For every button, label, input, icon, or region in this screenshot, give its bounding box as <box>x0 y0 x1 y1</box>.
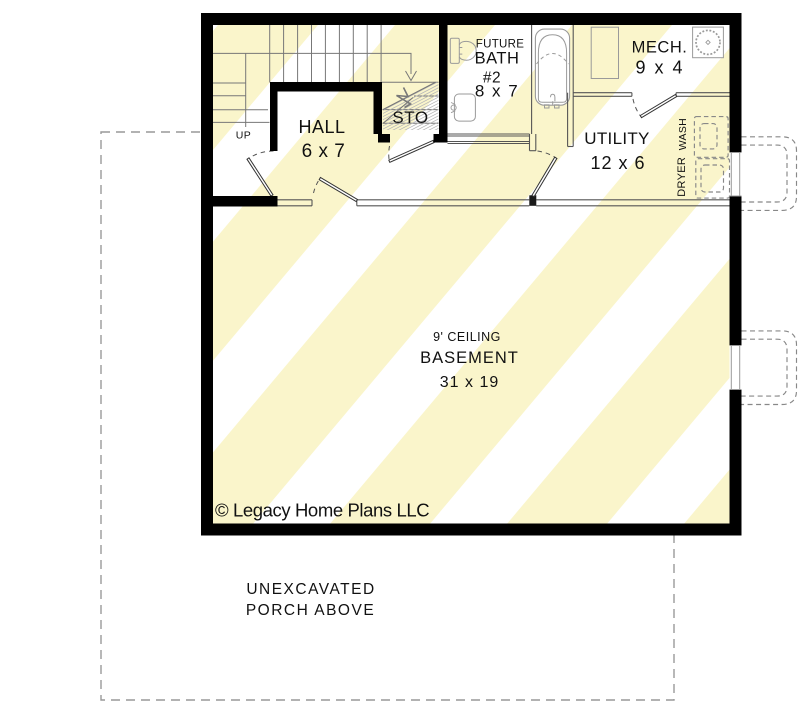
svg-text:UP: UP <box>236 130 252 142</box>
svg-text:PORCH ABOVE: PORCH ABOVE <box>246 602 375 619</box>
svg-text:UNEXCAVATED: UNEXCAVATED <box>246 581 375 598</box>
svg-text:31 x 19: 31 x 19 <box>440 374 499 391</box>
svg-text:STO: STO <box>392 108 428 127</box>
svg-text:WASH: WASH <box>677 118 689 150</box>
svg-text:9 x 4: 9 x 4 <box>635 58 684 78</box>
svg-text:MECH.: MECH. <box>632 39 688 57</box>
svg-text:8 x 7: 8 x 7 <box>475 82 519 101</box>
svg-text:12 x 6: 12 x 6 <box>590 153 645 173</box>
svg-text:HALL: HALL <box>298 117 345 137</box>
svg-text:© Legacy Home Plans LLC: © Legacy Home Plans LLC <box>215 500 429 521</box>
svg-text:UTILITY: UTILITY <box>584 129 649 148</box>
svg-text:BASEMENT: BASEMENT <box>420 349 519 367</box>
svg-text:6 x 7: 6 x 7 <box>302 141 346 162</box>
svg-text:DRYER: DRYER <box>676 157 688 197</box>
svg-text:BATH: BATH <box>475 50 520 68</box>
svg-text:9' CEILING: 9' CEILING <box>433 330 501 344</box>
